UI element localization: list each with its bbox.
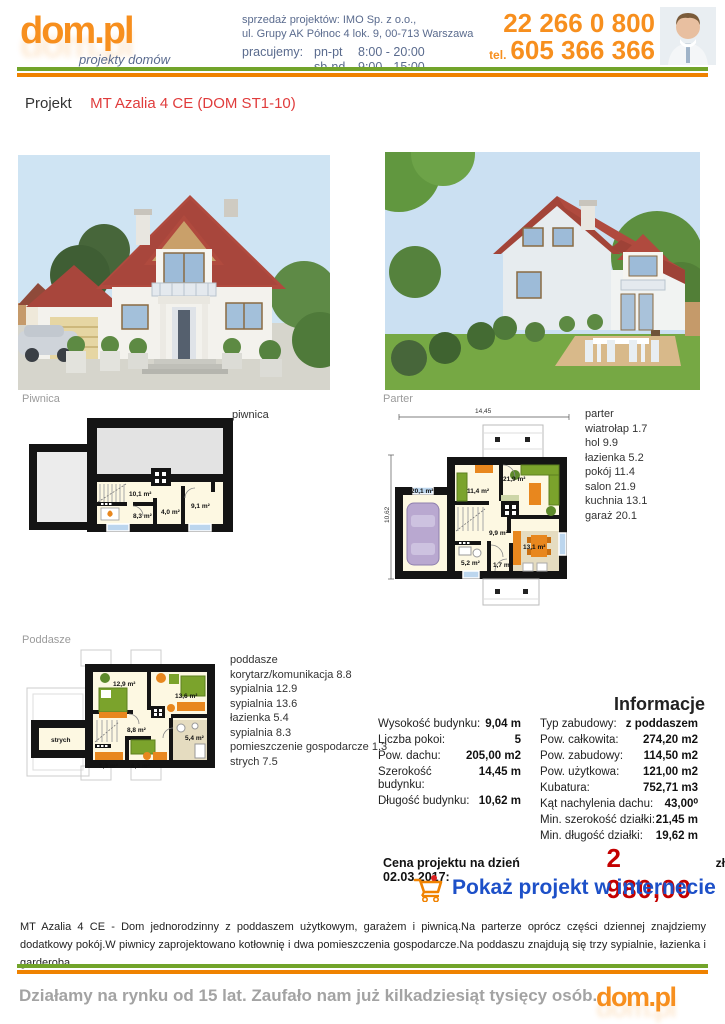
room-label: 13,1 m² xyxy=(523,544,546,551)
legend-line: pokój 11.4 xyxy=(585,465,715,480)
room-label: 21,9 m² xyxy=(503,476,526,483)
room-label: 11,4 m² xyxy=(467,488,490,495)
info-row: Szerokość budynku:14,45 m xyxy=(378,766,521,792)
room-label: 1,3 m² xyxy=(99,763,119,770)
room-label: 8,3 m² xyxy=(133,513,153,520)
info-row: Długość budynku:10,62 m xyxy=(378,795,521,808)
consultant-photo xyxy=(660,7,716,65)
project-title-row: Projekt MT Azalia 4 CE (DOM ST1-10) xyxy=(25,95,296,113)
legend-line: sypialnia 13.6 xyxy=(230,697,410,712)
footer-slogan: Działamy na rynku od 15 lat. Zaufało nam… xyxy=(19,986,597,1006)
info-row: Min. szerokość działki:21,45 m xyxy=(540,814,698,827)
hours-weekdays-label: pn-pt xyxy=(314,45,358,60)
room-label: 13,6 m² xyxy=(175,693,198,700)
page: dom.pl projekty domów sprzedaż projektów… xyxy=(0,0,725,1024)
phone-mobile: 605 366 366 xyxy=(510,35,655,65)
show-project-link[interactable]: Pokaż projekt w internecie xyxy=(412,874,716,902)
room-label: 9,1 m² xyxy=(191,503,211,510)
room-label: 1,7 m² xyxy=(493,562,513,569)
info-row: Kąt nachylenia dachu:43,00⁰ xyxy=(540,798,698,811)
legend-line: parter xyxy=(585,407,715,422)
footer-divider-green xyxy=(17,964,708,968)
room-label: 12,9 m² xyxy=(113,681,136,688)
header-divider-orange xyxy=(17,73,708,77)
plan-title-piwnica: Piwnica xyxy=(22,393,60,405)
room-label: strych xyxy=(51,737,71,744)
floorplan-piwnica: 10,1 m² 8,3 m² 4,0 m² 9,1 m² xyxy=(25,406,235,536)
room-label: 5,4 m² xyxy=(185,735,205,742)
info-table-left: Wysokość budynku:9,04 m Liczba pokoi:5 P… xyxy=(378,718,521,808)
legend-parter: parter wiatrołap 1.7 hol 9.9 łazienka 5.… xyxy=(585,407,715,523)
tel-label: tel. xyxy=(489,48,506,62)
legend-line: kuchnia 13.1 xyxy=(585,494,715,509)
info-row: Kubatura:752,71 m3 xyxy=(540,782,698,795)
phone-main: 22 266 0 800 xyxy=(470,10,655,37)
room-label: 8,3 m² xyxy=(131,763,151,770)
info-table-right: Typ zabudowy:z poddaszem Pow. całkowita:… xyxy=(540,718,698,843)
hours-label: pracujemy: xyxy=(242,45,314,60)
sales-line-2: ul. Grupy AK Północ 4 lok. 9, 00-713 War… xyxy=(242,27,492,41)
floorplan-poddasze: 12,9 m² 13,6 m² 8,8 m² 5,4 m² 1,3 m² 8,3… xyxy=(25,648,225,783)
plan-caption-piwnica: piwnica xyxy=(232,409,269,421)
footer-logo[interactable]: dom.pl xyxy=(596,984,676,1011)
room-label: 4,0 m² xyxy=(161,509,181,516)
logo-text: dom.pl xyxy=(20,12,170,50)
floorplan-parter: 14,45 10,62 xyxy=(383,403,588,613)
info-row: Liczba pokoi:5 xyxy=(378,734,521,747)
legend-line: sypialnia 12.9 xyxy=(230,682,410,697)
cart-icon[interactable] xyxy=(412,874,444,902)
header-phones: 22 266 0 800 tel.605 366 366 xyxy=(470,10,655,69)
info-row: Pow. użytkowa:121,00 m2 xyxy=(540,766,698,779)
info-heading: Informacje xyxy=(540,694,705,715)
house-photo-front xyxy=(18,155,330,390)
dim-width: 14,45 xyxy=(475,408,492,415)
room-label: 20,1 m² xyxy=(411,488,434,495)
project-label: Projekt xyxy=(25,95,72,112)
plan-title-poddasze: Poddasze xyxy=(22,634,71,646)
sales-line-1: sprzedaż projektów: IMO Sp. z o.o., xyxy=(242,13,492,27)
legend-line: poddasze xyxy=(230,653,410,668)
info-row: Typ zabudowy:z poddaszem xyxy=(540,718,698,731)
legend-line: korytarz/komunikacja 8.8 xyxy=(230,668,410,683)
info-row: Min. długość działki:19,62 m xyxy=(540,830,698,843)
room-label: 9,9 m² xyxy=(489,530,509,537)
info-row: Pow. zabudowy:114,50 m2 xyxy=(540,750,698,763)
header-contact-block: sprzedaż projektów: IMO Sp. z o.o., ul. … xyxy=(242,13,492,75)
footer-divider-orange xyxy=(17,970,708,974)
info-row: Pow. całkowita:274,20 m2 xyxy=(540,734,698,747)
room-label: 8,8 m² xyxy=(127,727,147,734)
info-row: Pow. dachu:205,00 m2 xyxy=(378,750,521,763)
house-photo-garden xyxy=(385,152,700,390)
legend-line: łazienka 5.2 xyxy=(585,451,715,466)
legend-line: hol 9.9 xyxy=(585,436,715,451)
logo-tagline: projekty domów xyxy=(20,52,170,67)
room-label: 10,1 m² xyxy=(129,491,152,498)
header-divider-green xyxy=(17,67,708,71)
project-name: MT Azalia 4 CE (DOM ST1-10) xyxy=(90,95,296,112)
header-logo[interactable]: dom.pl projekty domów xyxy=(20,12,170,67)
price-currency: zł xyxy=(716,856,725,870)
show-project-label[interactable]: Pokaż projekt w internecie xyxy=(452,876,716,900)
legend-line: garaż 20.1 xyxy=(585,509,715,524)
info-row: Wysokość budynku:9,04 m xyxy=(378,718,521,731)
legend-line: wiatrołap 1.7 xyxy=(585,422,715,437)
room-label: 5,2 m² xyxy=(461,560,481,567)
legend-line: salon 21.9 xyxy=(585,480,715,495)
dim-height: 10,62 xyxy=(384,506,391,523)
